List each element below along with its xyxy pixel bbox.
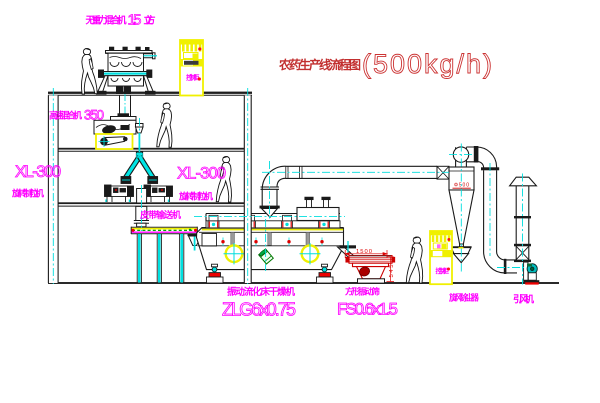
svg-text:控制柜: 控制柜 [436,266,450,275]
svg-text:立方: 立方 [144,15,156,27]
svg-text:引风机: 引风机 [513,294,534,306]
svg-text:方形振动筛: 方形振动筛 [345,287,380,297]
svg-text:FS0.6x1.5: FS0.6x1.5 [337,300,398,319]
svg-text:旋转制粒机: 旋转制粒机 [11,188,44,199]
svg-text:控制柜: 控制柜 [186,73,200,82]
svg-text:ZLG6x0.75: ZLG6x0.75 [222,300,296,320]
svg-text:农药生产线流程图: 农药生产线流程图 [278,57,361,72]
svg-text:振动流化床干燥机: 振动流化床干燥机 [227,286,295,298]
svg-text:1.5: 1.5 [128,12,142,29]
svg-text:无重力混合机: 无重力混合机 [85,15,127,27]
svg-text:(500kg/h): (500kg/h) [362,49,492,79]
svg-text:350: 350 [84,108,104,123]
svg-text:XL-300: XL-300 [15,163,61,181]
svg-text:旋转制粒机: 旋转制粒机 [178,191,213,202]
svg-text:1500: 1500 [356,249,372,255]
svg-text:545: 545 [389,265,395,278]
svg-text:旋风除尘器: 旋风除尘器 [448,293,479,303]
svg-text:皮带输送机: 皮带输送机 [139,209,181,220]
svg-text:XL-300: XL-300 [177,165,226,183]
svg-text:高速混合机: 高速混合机 [49,110,82,121]
